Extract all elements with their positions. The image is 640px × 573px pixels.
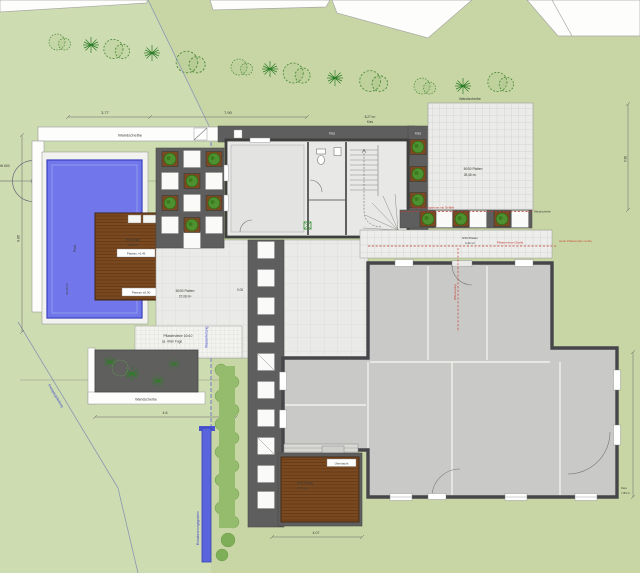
terrace-area-label: 37,08 m² [179, 295, 192, 299]
wood-deck: Holzbelag Lärche Plateau +0,45 Plateau ±… [95, 213, 160, 300]
planter-icon [494, 212, 510, 227]
planter-icon [410, 140, 426, 155]
planter-icon [410, 167, 426, 182]
dim-label: 3.77 [101, 110, 110, 115]
wall-band-label: Wandscheibe [135, 398, 157, 402]
deck-material-label: Holzbelag [126, 238, 140, 242]
deck-wood-label: Lärche [128, 243, 138, 247]
room-main [231, 145, 304, 232]
window [250, 138, 270, 143]
red-note: Pflasterrinne (Stahl) [497, 241, 524, 245]
entry-door-gap [452, 261, 472, 267]
south-deck: Überdacht Holz-Belag 17,5 m² [278, 444, 362, 526]
manhole-label: Schacht DN 600 [0, 164, 10, 168]
red-rw-label: RW-Leitung [453, 284, 457, 300]
deck-furniture [128, 215, 141, 223]
water-line-label: Wasserleitung [205, 327, 209, 348]
terrace-material-label: 50/50 Platten [176, 289, 195, 293]
planter-icon [206, 196, 222, 211]
site-plan-canvas: 3.77 7.90 9.85 4.6 4.07 5.15 5.60 Schach… [0, 0, 640, 573]
deck-area-label: 17,5 m² [297, 487, 308, 491]
drainage-label: Entwässerungsgraben [196, 511, 200, 545]
gravel-label: Kies [329, 132, 336, 136]
planter-icon [184, 174, 200, 189]
pavers-label: Pflastersteine 10x10 [164, 334, 193, 338]
level-label: Plateau ±0,00 [132, 291, 151, 295]
gravel-area-label: 8,27 m² [365, 115, 376, 119]
window [224, 195, 229, 211]
dim-label: 4.07 [313, 531, 320, 535]
pool-label: Pool [73, 245, 77, 252]
gravel-label: Kies [367, 120, 374, 124]
planter-icon [206, 152, 222, 167]
bed-surface [95, 350, 198, 392]
patio-area-label: 28,46 m² [464, 173, 477, 177]
patio-material-label: 50/50 Platten [464, 167, 483, 171]
deck-furniture [143, 215, 156, 223]
planter-icon [420, 212, 436, 227]
wall-band-label: Wandscheibe [118, 133, 143, 138]
gravel-label: Kies [415, 132, 422, 136]
wall-label-small: Wandscheibe [534, 210, 551, 214]
planter-icon [162, 152, 178, 167]
level-zero-label: 0.00 [237, 288, 243, 292]
walkway-material-label: 5/40 Platten [462, 236, 478, 240]
gravel-length-label: 7,84 m [621, 491, 631, 495]
patio-wall-label: Wandscheibe [459, 97, 481, 101]
planter-icon [453, 212, 469, 227]
drainage-channel [202, 428, 211, 562]
level-label: Plateau +0,45 [127, 252, 146, 256]
window [224, 165, 229, 181]
right-patio: Wandscheibe 50/50 Platten 28,46 m² [428, 97, 533, 210]
walkway-area-label: 4,32 m² [465, 241, 475, 245]
dim-label: 7.90 [224, 110, 233, 115]
pool-house: Kies Kies 8,27 m² Kies [218, 115, 428, 240]
door-gap [428, 494, 446, 500]
pavers-joint-label: ca. 4mm Fuge [162, 340, 183, 344]
planter-icon [162, 196, 178, 211]
red-note: Entwässerungsrinne mit Gefälle [412, 206, 455, 210]
planter-icon [184, 218, 200, 233]
gravel-label: Kies [621, 486, 627, 490]
dim-label: 4.6 [163, 411, 168, 415]
deck-material-label: Holz-Belag [297, 481, 313, 485]
dim-label: 5.60 [624, 156, 628, 162]
planting-bed: Wandscheibe [88, 348, 205, 404]
site-plan-drawing: 3.77 7.90 9.85 4.6 4.07 5.15 5.60 Schach… [0, 0, 640, 573]
dim-label: 9.85 [17, 235, 21, 242]
pool-area-label: 32,50 m² [65, 283, 69, 295]
red-note-green: siehe Pflasterplan rechts [559, 239, 592, 243]
deck-cover-label: Überdacht [335, 461, 349, 465]
